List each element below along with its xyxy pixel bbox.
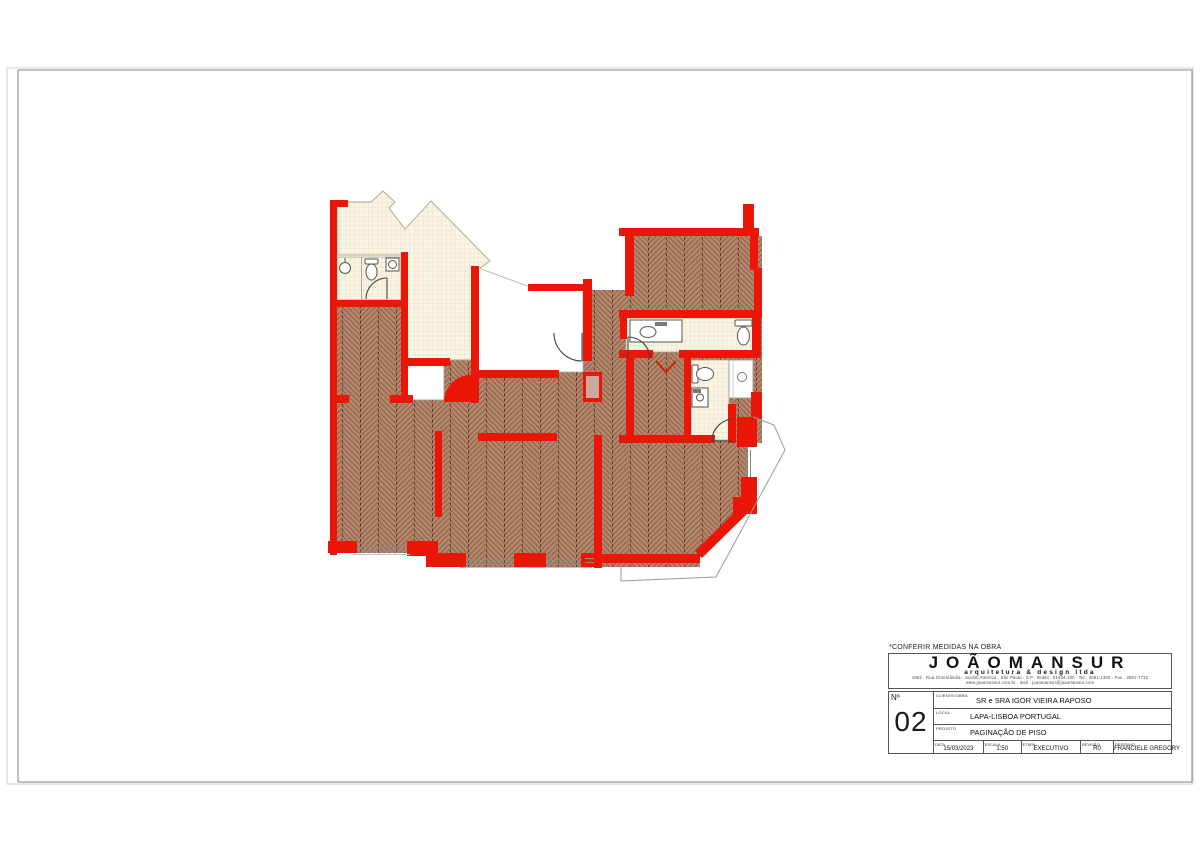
sink-icon bbox=[692, 388, 708, 407]
sheet-number: 02 bbox=[889, 706, 933, 738]
field-row-project: PROJETO PAGINAÇÃO DE PISO bbox=[934, 725, 1171, 741]
sheet-number-label: Nº bbox=[891, 693, 900, 702]
drawing-sheet: *CONFERIR MEDIDAS NA OBRA JOÃOMANSUR arq… bbox=[0, 0, 1200, 848]
column-block bbox=[583, 372, 602, 402]
field-row-client: CLIENTE/OBRA SR e SRA IGOR VIEIRA RAPOSO bbox=[934, 692, 1171, 709]
meta-stage: ETAPA EXECUTIVO bbox=[1022, 741, 1081, 754]
shower-stall bbox=[729, 360, 753, 398]
washbasin-icon bbox=[340, 263, 351, 274]
meta-row: DATA 15/03/2023 ESCALA 1:50 ETAPA EXECUT… bbox=[934, 741, 1171, 754]
meta-revision: REVISÃO R0 bbox=[1081, 741, 1114, 754]
field-row-local: LOCAL LAPA-LISBOA PORTUGAL bbox=[934, 709, 1171, 725]
firm-address-line2: www.joaomansur.com.br . mail . joaomansu… bbox=[889, 681, 1171, 686]
toilet-icon bbox=[365, 259, 378, 280]
meta-drafter: DESENHO FRANCIELE GREGORY bbox=[1114, 741, 1171, 754]
meta-scale: ESCALA 1:50 bbox=[984, 741, 1022, 754]
small-closet-room bbox=[406, 362, 444, 400]
firm-logo: JOÃOMANSUR arquitetura & design ltda 195… bbox=[888, 653, 1172, 689]
title-block: *CONFERIR MEDIDAS NA OBRA JOÃOMANSUR arq… bbox=[888, 644, 1172, 754]
sink-icon bbox=[386, 258, 399, 271]
meta-date: DATA 15/03/2023 bbox=[934, 741, 984, 754]
firm-name: JOÃOMANSUR bbox=[889, 655, 1171, 670]
title-block-table: Nº 02 CLIENTE/OBRA SR e SRA IGOR VIEIRA … bbox=[888, 691, 1172, 754]
sheet-number-cell: Nº 02 bbox=[889, 692, 934, 753]
site-note: *CONFERIR MEDIDAS NA OBRA bbox=[889, 644, 1172, 651]
